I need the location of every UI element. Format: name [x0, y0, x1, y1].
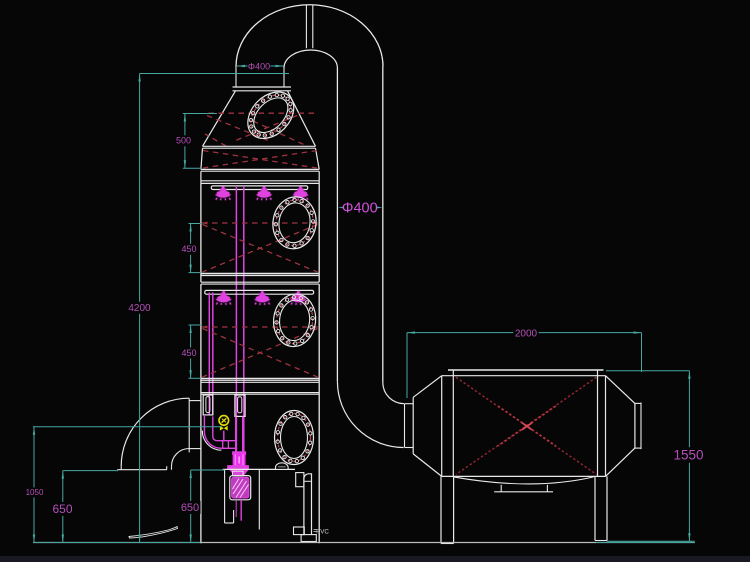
- svg-text:450: 450: [181, 244, 196, 254]
- svg-text:Φ400: Φ400: [248, 62, 270, 72]
- svg-text:500: 500: [176, 136, 191, 146]
- svg-text:4200: 4200: [128, 303, 151, 314]
- svg-text:650: 650: [181, 502, 199, 514]
- svg-text:1550: 1550: [673, 447, 703, 462]
- svg-text:650: 650: [52, 502, 72, 516]
- svg-text:Φ400: Φ400: [342, 201, 378, 217]
- svg-text:PVC: PVC: [316, 529, 329, 536]
- svg-text:1050: 1050: [26, 488, 44, 497]
- svg-text:450: 450: [181, 348, 196, 358]
- svg-text:2000: 2000: [515, 328, 538, 339]
